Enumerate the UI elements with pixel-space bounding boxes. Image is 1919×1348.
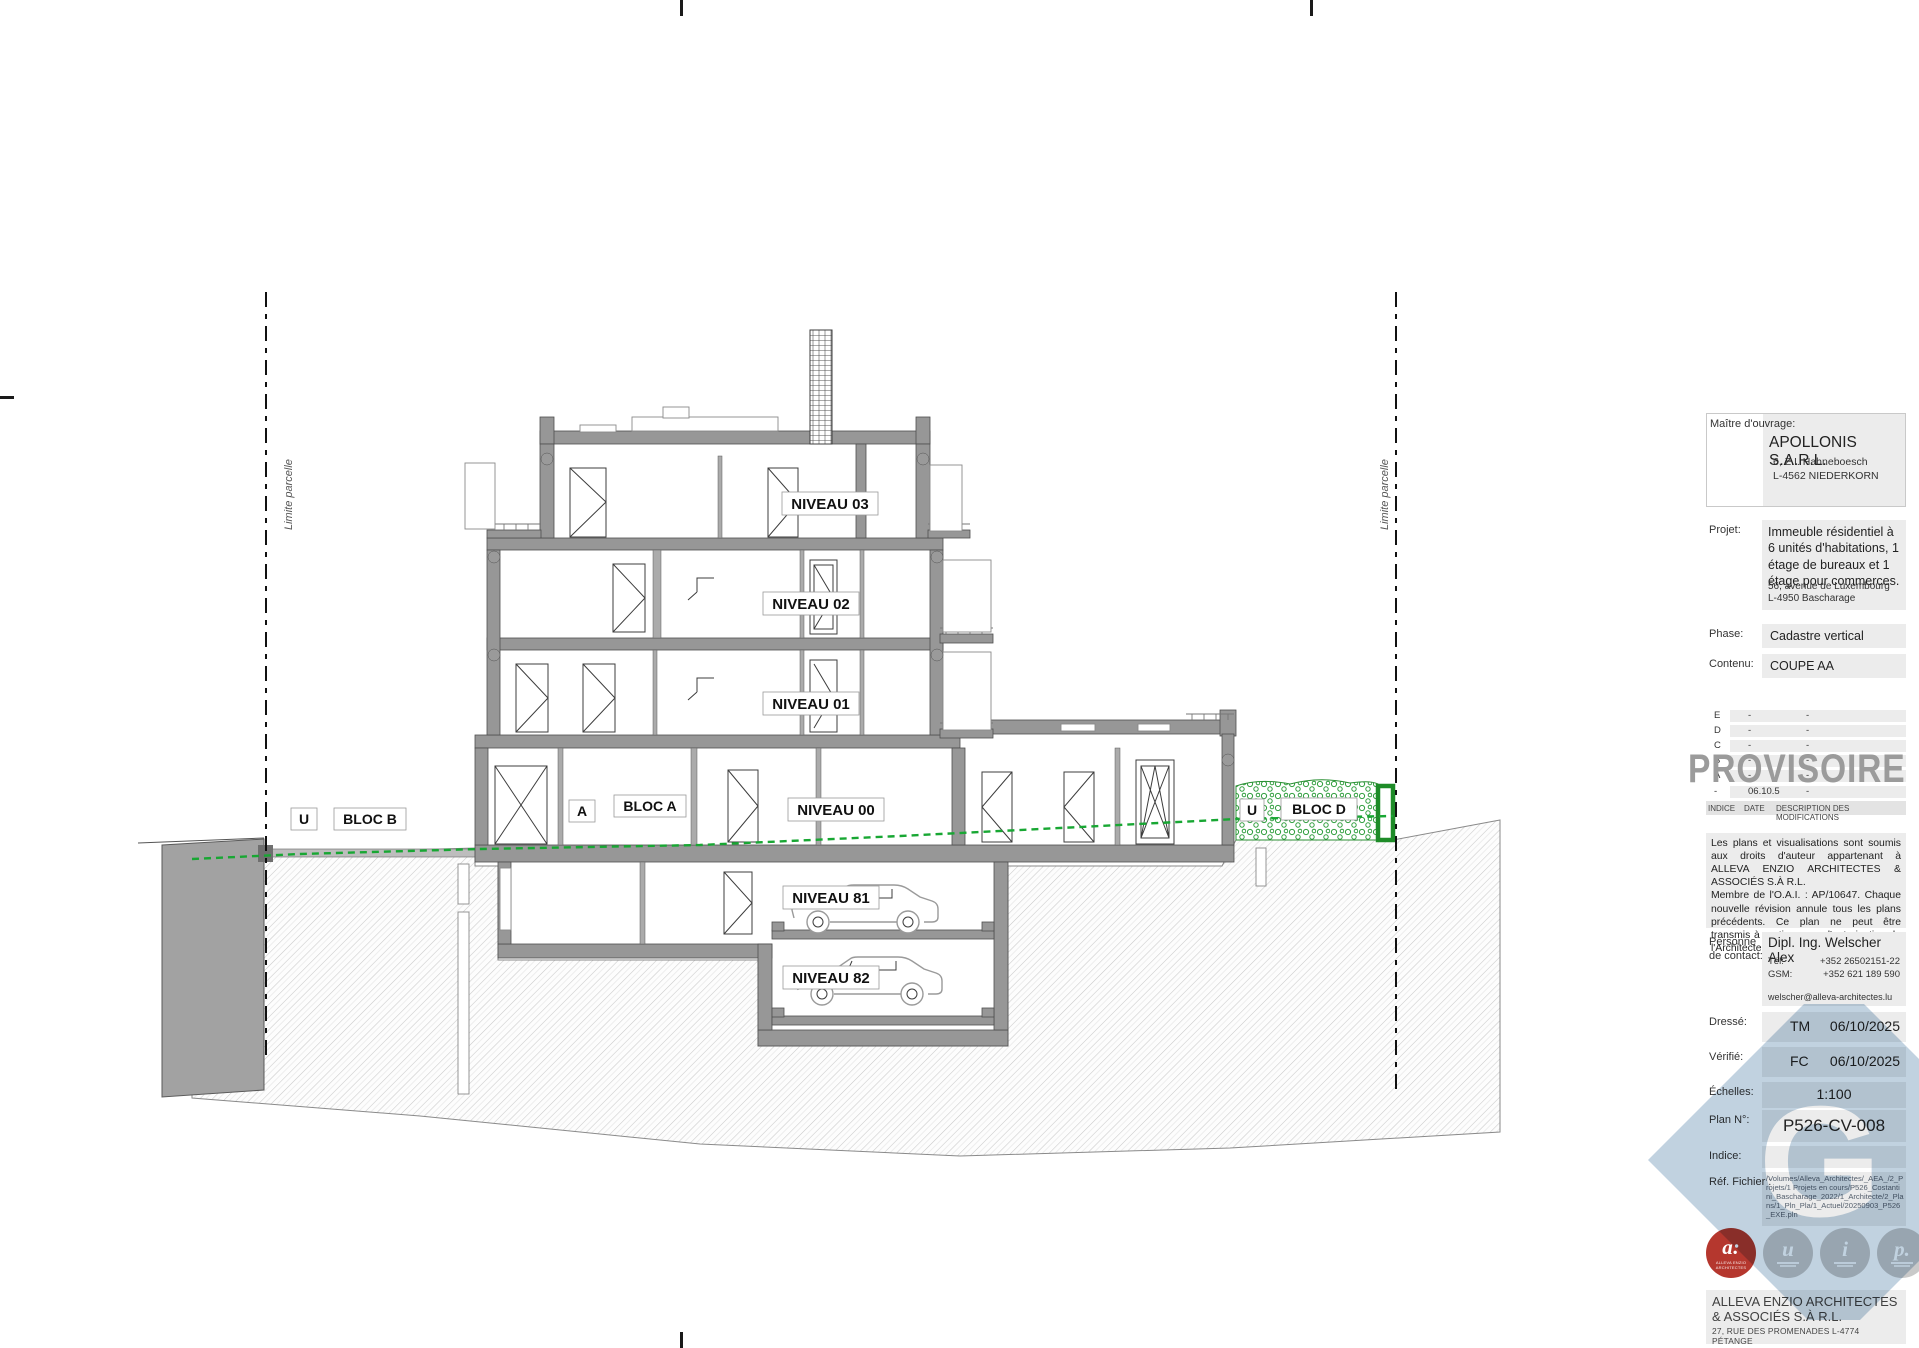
owner-address-2: L-4562 NIEDERKORN xyxy=(1773,470,1879,482)
plan-number-row: Plan N°: P526-CV-008 xyxy=(1706,1110,1906,1142)
logo-caption: ALLEVA ENZIO ARCHITECTES xyxy=(1706,1260,1756,1270)
label-niveau-81: NIVEAU 81 xyxy=(792,890,870,907)
rev-desc: - xyxy=(1806,725,1809,736)
logo-letter: a: xyxy=(1722,1237,1740,1258)
scale-value: 1:100 xyxy=(1762,1086,1906,1102)
plan-number-value: P526-CV-008 xyxy=(1762,1116,1906,1136)
verifie-label: Vérifié: xyxy=(1709,1051,1743,1065)
firm-name-1: ALLEVA ENZIO ARCHITECTES xyxy=(1712,1294,1900,1309)
drain-shaft xyxy=(458,912,469,1094)
file-ref-value: /Volumes/Alleva_Architectes/_AEA_/2_Proj… xyxy=(1766,1174,1904,1220)
dresse-initials: TM xyxy=(1790,1018,1810,1034)
indice-label: Indice: xyxy=(1709,1150,1741,1164)
phase-row: Phase: Cadastre vertical xyxy=(1706,624,1906,648)
partner-logo-2: i xyxy=(1820,1228,1870,1278)
owner-section: Maître d'ouvrage: APOLLONIS S.A.R.L. 6, … xyxy=(1706,413,1906,507)
logo-letter: i xyxy=(1842,1239,1848,1260)
dresse-row: Dressé: TM 06/10/2025 xyxy=(1706,1012,1906,1042)
label-u-right: U xyxy=(1247,802,1257,818)
rev-indice: E xyxy=(1714,710,1720,721)
rev-date: - xyxy=(1748,710,1751,721)
file-ref-row: Réf. Fichier : /Volumes/Alleva_Architect… xyxy=(1706,1172,1906,1226)
scale-label: Échelles: xyxy=(1709,1086,1754,1100)
project-address-1: 56, avenue de Luxembourg xyxy=(1768,581,1890,592)
green-fence xyxy=(1378,786,1393,840)
dresse-date: 06/10/2025 xyxy=(1830,1018,1900,1034)
label-niveau-82: NIVEAU 82 xyxy=(792,970,870,987)
drain-shaft xyxy=(458,864,469,904)
label-a: A xyxy=(577,803,587,819)
firm-name-2: & ASSOCIÉS S.À R.L. xyxy=(1712,1309,1900,1324)
logo-row: a: ALLEVA ENZIO ARCHITECTES u i p. xyxy=(1706,1228,1916,1284)
rev-date: - xyxy=(1748,725,1751,736)
owner-address-1: 6, Z.I. Hahneboesch xyxy=(1773,456,1868,468)
firm-address: 27, RUE DES PROMENADES L-4774 PÉTANGE xyxy=(1712,1326,1900,1346)
content-row: Contenu: COUPE AA xyxy=(1706,654,1906,678)
gsm-label: GSM: xyxy=(1768,969,1792,980)
verifie-initials: FC xyxy=(1790,1053,1809,1069)
footing-post xyxy=(1256,848,1266,886)
provisoire-stamp: PROVISOIRE xyxy=(1688,747,1906,792)
project-label: Projet: xyxy=(1709,524,1741,538)
label-bloc-b: BLOC B xyxy=(343,811,397,827)
alleva-enzio-logo: a: ALLEVA ENZIO ARCHITECTES xyxy=(1706,1228,1756,1278)
plan-sheet: { "drawing": { "parcel_label_left": "Lim… xyxy=(0,0,1919,1348)
tel-value: +352 26502151-22 xyxy=(1820,956,1900,967)
owner-label: Maître d'ouvrage: xyxy=(1710,418,1795,432)
parcel-label-left: Limite parcelle xyxy=(283,459,295,530)
roof-vent xyxy=(663,407,689,418)
partner-logo-1: u xyxy=(1763,1228,1813,1278)
rev-desc: - xyxy=(1806,710,1809,721)
contact-label: Personne de contact: xyxy=(1709,936,1763,964)
project-description: Immeuble résidentiel à 6 unités d'habita… xyxy=(1768,524,1900,589)
logo-letter: u xyxy=(1782,1239,1794,1260)
scale-row: Échelles: 1:100 xyxy=(1706,1082,1906,1108)
contact-section: Personne de contact: Dipl. Ing. Welscher… xyxy=(1706,932,1906,1006)
label-u-left: U xyxy=(299,811,309,827)
project-address-2: L-4950 Bascharage xyxy=(1768,593,1855,604)
contact-email: welscher@alleva-architectes.lu xyxy=(1768,992,1892,1002)
tel-label: Tél: xyxy=(1768,956,1784,967)
roof-chimney xyxy=(810,330,832,444)
label-bloc-d: BLOC D xyxy=(1292,801,1346,817)
phase-label: Phase: xyxy=(1709,628,1743,642)
phase-value: Cadastre vertical xyxy=(1770,629,1864,643)
label-niveau-03: NIVEAU 03 xyxy=(791,496,869,513)
indice-row: Indice: xyxy=(1706,1146,1906,1168)
partner-logo-3: p. xyxy=(1877,1228,1919,1278)
verifie-date: 06/10/2025 xyxy=(1830,1053,1900,1069)
label-niveau-02: NIVEAU 02 xyxy=(772,596,850,613)
revisions-header: INDICE DATE DESCRIPTION DES MODIFICATION… xyxy=(1706,801,1906,815)
content-label: Contenu: xyxy=(1709,658,1754,672)
firm-block: ALLEVA ENZIO ARCHITECTES & ASSOCIÉS S.À … xyxy=(1706,1290,1906,1344)
gsm-value: +352 621 189 590 xyxy=(1823,969,1900,980)
label-niveau-00: NIVEAU 00 xyxy=(797,802,875,819)
rev-indice: D xyxy=(1714,725,1721,736)
content-value: COUPE AA xyxy=(1770,659,1834,673)
file-ref-label: Réf. Fichier : xyxy=(1709,1176,1771,1190)
label-bloc-a: BLOC A xyxy=(623,798,676,814)
label-niveau-01: NIVEAU 01 xyxy=(772,696,850,713)
parcel-label-right: Limite parcelle xyxy=(1379,459,1391,530)
verifie-row: Vérifié: FC 06/10/2025 xyxy=(1706,1047,1906,1077)
logo-letter: p. xyxy=(1894,1239,1910,1260)
plan-number-label: Plan N°: xyxy=(1709,1114,1749,1128)
copyright-notice: Les plans et visualisations sont soumis … xyxy=(1706,833,1906,928)
roof-equipment xyxy=(632,417,778,431)
dresse-label: Dressé: xyxy=(1709,1016,1747,1030)
project-section: Projet: Immeuble résidentiel à 6 unités … xyxy=(1706,520,1906,610)
building-section-drawing: Limite parcelle Limite parcelle NIVEAU 0… xyxy=(0,0,1919,1348)
title-block: Maître d'ouvrage: APOLLONIS S.A.R.L. 6, … xyxy=(1700,0,1919,1348)
roof-skylight xyxy=(580,425,616,432)
